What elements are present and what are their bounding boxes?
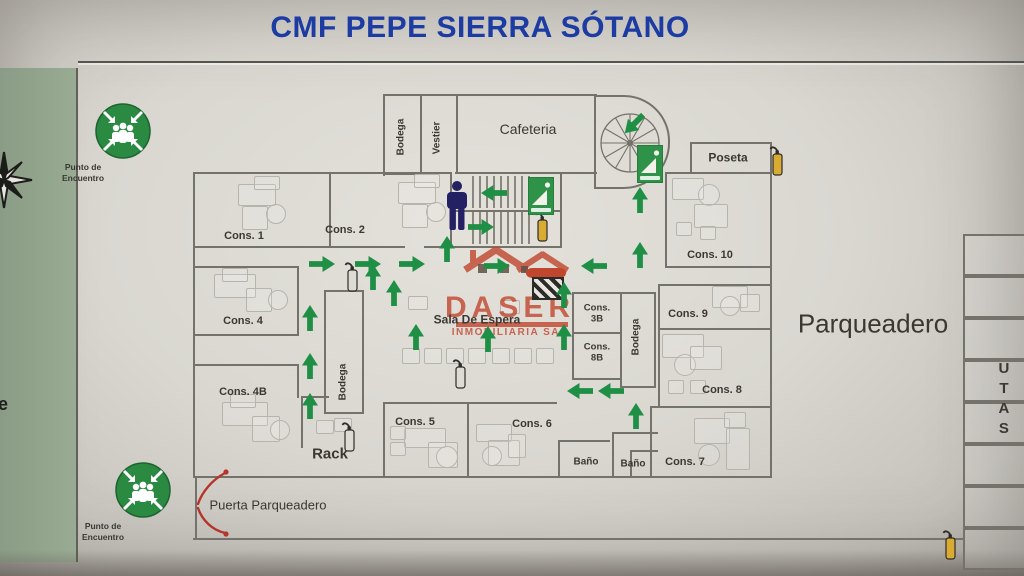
meeting-point-icon xyxy=(115,462,171,518)
stair-step xyxy=(500,212,502,244)
wall xyxy=(193,476,772,478)
furniture xyxy=(694,204,728,228)
stair-step xyxy=(493,212,495,244)
furniture xyxy=(390,442,406,456)
room-label-vestier: Vestier xyxy=(431,122,442,155)
parking-stall xyxy=(963,234,1024,276)
wall xyxy=(362,290,364,414)
room-label-utas: UTAS xyxy=(995,360,1012,440)
route-arrow-up-icon xyxy=(439,236,455,262)
furniture xyxy=(514,348,532,364)
wall xyxy=(193,172,195,478)
wall xyxy=(770,142,772,478)
wall xyxy=(324,412,364,414)
furniture xyxy=(424,348,442,364)
wall xyxy=(572,292,574,380)
parking-stall xyxy=(963,276,1024,318)
stair-step xyxy=(472,176,474,208)
route-arrow-right-icon xyxy=(484,258,510,274)
furniture xyxy=(468,348,486,364)
wall xyxy=(383,94,385,176)
furniture xyxy=(700,226,716,240)
furniture xyxy=(668,380,684,394)
room-label-cons-5: Cons. 5 xyxy=(395,416,435,428)
route-arrow-up-icon xyxy=(408,324,424,350)
wall xyxy=(420,94,422,174)
wall xyxy=(665,266,770,268)
exit-sign-icon xyxy=(637,145,663,183)
wall xyxy=(193,172,452,174)
wall xyxy=(658,328,770,330)
furniture xyxy=(508,434,526,458)
room-label-cons-9: Cons. 9 xyxy=(668,308,708,320)
room-label-poseta: Poseta xyxy=(708,151,747,164)
stair-step xyxy=(521,212,523,244)
wall xyxy=(572,332,622,334)
stair-step xyxy=(507,176,509,208)
wall xyxy=(665,172,667,268)
room-label-bodega-right: Bodega xyxy=(630,319,641,356)
parking-stall xyxy=(963,360,1024,402)
stair-step xyxy=(507,212,509,244)
watermark-chimney-icon xyxy=(470,250,476,264)
furniture xyxy=(414,174,440,188)
wall xyxy=(572,292,622,294)
wall xyxy=(658,284,660,408)
furniture xyxy=(402,204,428,228)
wall xyxy=(650,406,652,476)
meeting-point-icon xyxy=(95,103,151,159)
room-label-cons-3b: Cons. 3B xyxy=(580,303,614,324)
room-label-bodega-top: Bodega xyxy=(395,119,406,156)
route-arrow-up-icon xyxy=(556,324,572,350)
furniture xyxy=(408,296,428,310)
room-label-cons-8: Cons. 8 xyxy=(702,384,742,396)
wall xyxy=(383,402,385,476)
room-label-cons-4: Cons. 4 xyxy=(223,315,263,327)
room-label-cafeteria: Cafeteria xyxy=(500,122,557,138)
route-arrow-right-icon xyxy=(399,256,425,272)
route-arrow-up-icon xyxy=(302,353,318,379)
wall xyxy=(297,364,299,398)
wall xyxy=(301,396,303,448)
door-swing-arrows-icon xyxy=(192,466,246,540)
wall xyxy=(620,386,656,388)
fire-extinguisher-icon xyxy=(769,145,785,177)
chair xyxy=(426,202,446,222)
photo-background: e CMF PEPE SIERRA SÓTANO DASER INMOBILIA… xyxy=(0,0,1024,576)
wall xyxy=(297,266,299,336)
chair xyxy=(482,446,502,466)
meeting-point-label: Punto de Encuentro xyxy=(63,521,143,542)
furniture xyxy=(242,206,268,230)
route-arrow-up-icon xyxy=(632,242,648,268)
wall xyxy=(455,172,597,174)
chair xyxy=(266,204,286,224)
furniture xyxy=(740,294,760,312)
furniture xyxy=(492,348,510,364)
wall xyxy=(612,432,614,476)
route-arrow-up-icon xyxy=(386,280,402,306)
wall xyxy=(690,142,772,144)
wall xyxy=(654,292,656,388)
wall xyxy=(383,94,597,96)
photo-bottom-shadow xyxy=(0,550,1024,576)
person-icon xyxy=(445,181,469,231)
room-label-cons-2: Cons. 2 xyxy=(325,224,365,236)
route-arrow-left-icon xyxy=(581,258,607,274)
wall xyxy=(572,378,622,380)
electrical-panel-icon xyxy=(532,277,564,300)
room-label-cons-4b: Cons. 4B xyxy=(219,386,267,398)
room-label-bodega-mid: Bodega xyxy=(337,364,348,401)
wall xyxy=(193,538,963,540)
room-label-cons-8b: Cons. 8B xyxy=(580,342,614,363)
fire-extinguisher-icon xyxy=(942,529,958,561)
parking-stall xyxy=(963,486,1024,528)
wall xyxy=(665,172,772,174)
route-arrow-up-icon xyxy=(632,187,648,213)
route-arrow-up-icon xyxy=(302,305,318,331)
route-arrow-up-icon xyxy=(628,403,644,429)
chair xyxy=(698,184,720,206)
parking-stall xyxy=(963,402,1024,444)
route-arrow-left-icon xyxy=(567,383,593,399)
wall xyxy=(650,406,770,408)
wall xyxy=(193,246,405,248)
furniture xyxy=(690,346,722,370)
wall xyxy=(193,334,299,336)
fire-extinguisher-icon xyxy=(341,421,357,453)
wall xyxy=(456,94,458,174)
room-label-bano-1: Baño xyxy=(574,456,599,467)
route-arrow-right-icon xyxy=(309,256,335,272)
room-label-cons-6: Cons. 6 xyxy=(512,418,552,430)
fire-extinguisher-icon xyxy=(344,261,360,293)
wall xyxy=(383,402,557,404)
chair xyxy=(720,296,740,316)
wall xyxy=(558,440,560,476)
floor-plan: DASER INMOBILIARIA SAS BodegaVestier xyxy=(0,0,1024,576)
stair-step xyxy=(528,212,530,244)
wall xyxy=(558,440,610,442)
parking-stall xyxy=(963,318,1024,360)
room-label-parqueadero: Parqueadero xyxy=(798,309,948,338)
furniture xyxy=(724,412,746,428)
wall xyxy=(620,292,656,294)
furniture xyxy=(222,268,248,282)
chair xyxy=(270,420,290,440)
stair-step xyxy=(521,176,523,208)
furniture xyxy=(402,348,420,364)
wall xyxy=(301,396,329,398)
wall xyxy=(560,174,562,248)
fire-extinguisher-icon xyxy=(452,358,468,390)
room-label-bano-2: Baño xyxy=(621,458,646,469)
furniture xyxy=(726,428,750,470)
room-label-sala-espera: Sala De Espera xyxy=(434,313,521,326)
stair-step xyxy=(514,212,516,244)
furniture xyxy=(254,176,280,190)
stair-step xyxy=(514,176,516,208)
wall xyxy=(467,402,469,476)
parking-stall xyxy=(963,528,1024,570)
wall xyxy=(193,364,299,366)
room-label-cons-10: Cons. 10 xyxy=(687,249,733,261)
exit-sign-icon xyxy=(528,177,554,215)
room-label-cons-1: Cons. 1 xyxy=(224,230,264,242)
meeting-point-label: Punto de Encuentro xyxy=(43,162,123,183)
route-arrow-up-icon xyxy=(365,264,381,290)
stair-step xyxy=(479,176,481,208)
chair xyxy=(268,290,288,310)
fire-extinguisher-icon xyxy=(534,211,550,243)
furniture xyxy=(536,348,554,364)
furniture xyxy=(316,420,334,434)
parking-stall xyxy=(963,444,1024,486)
wall xyxy=(620,292,622,388)
wall xyxy=(630,450,658,452)
furniture xyxy=(676,222,692,236)
room-label-cons-7: Cons. 7 xyxy=(665,456,705,468)
wall xyxy=(448,246,562,248)
chair xyxy=(436,446,458,468)
wall xyxy=(690,142,692,174)
